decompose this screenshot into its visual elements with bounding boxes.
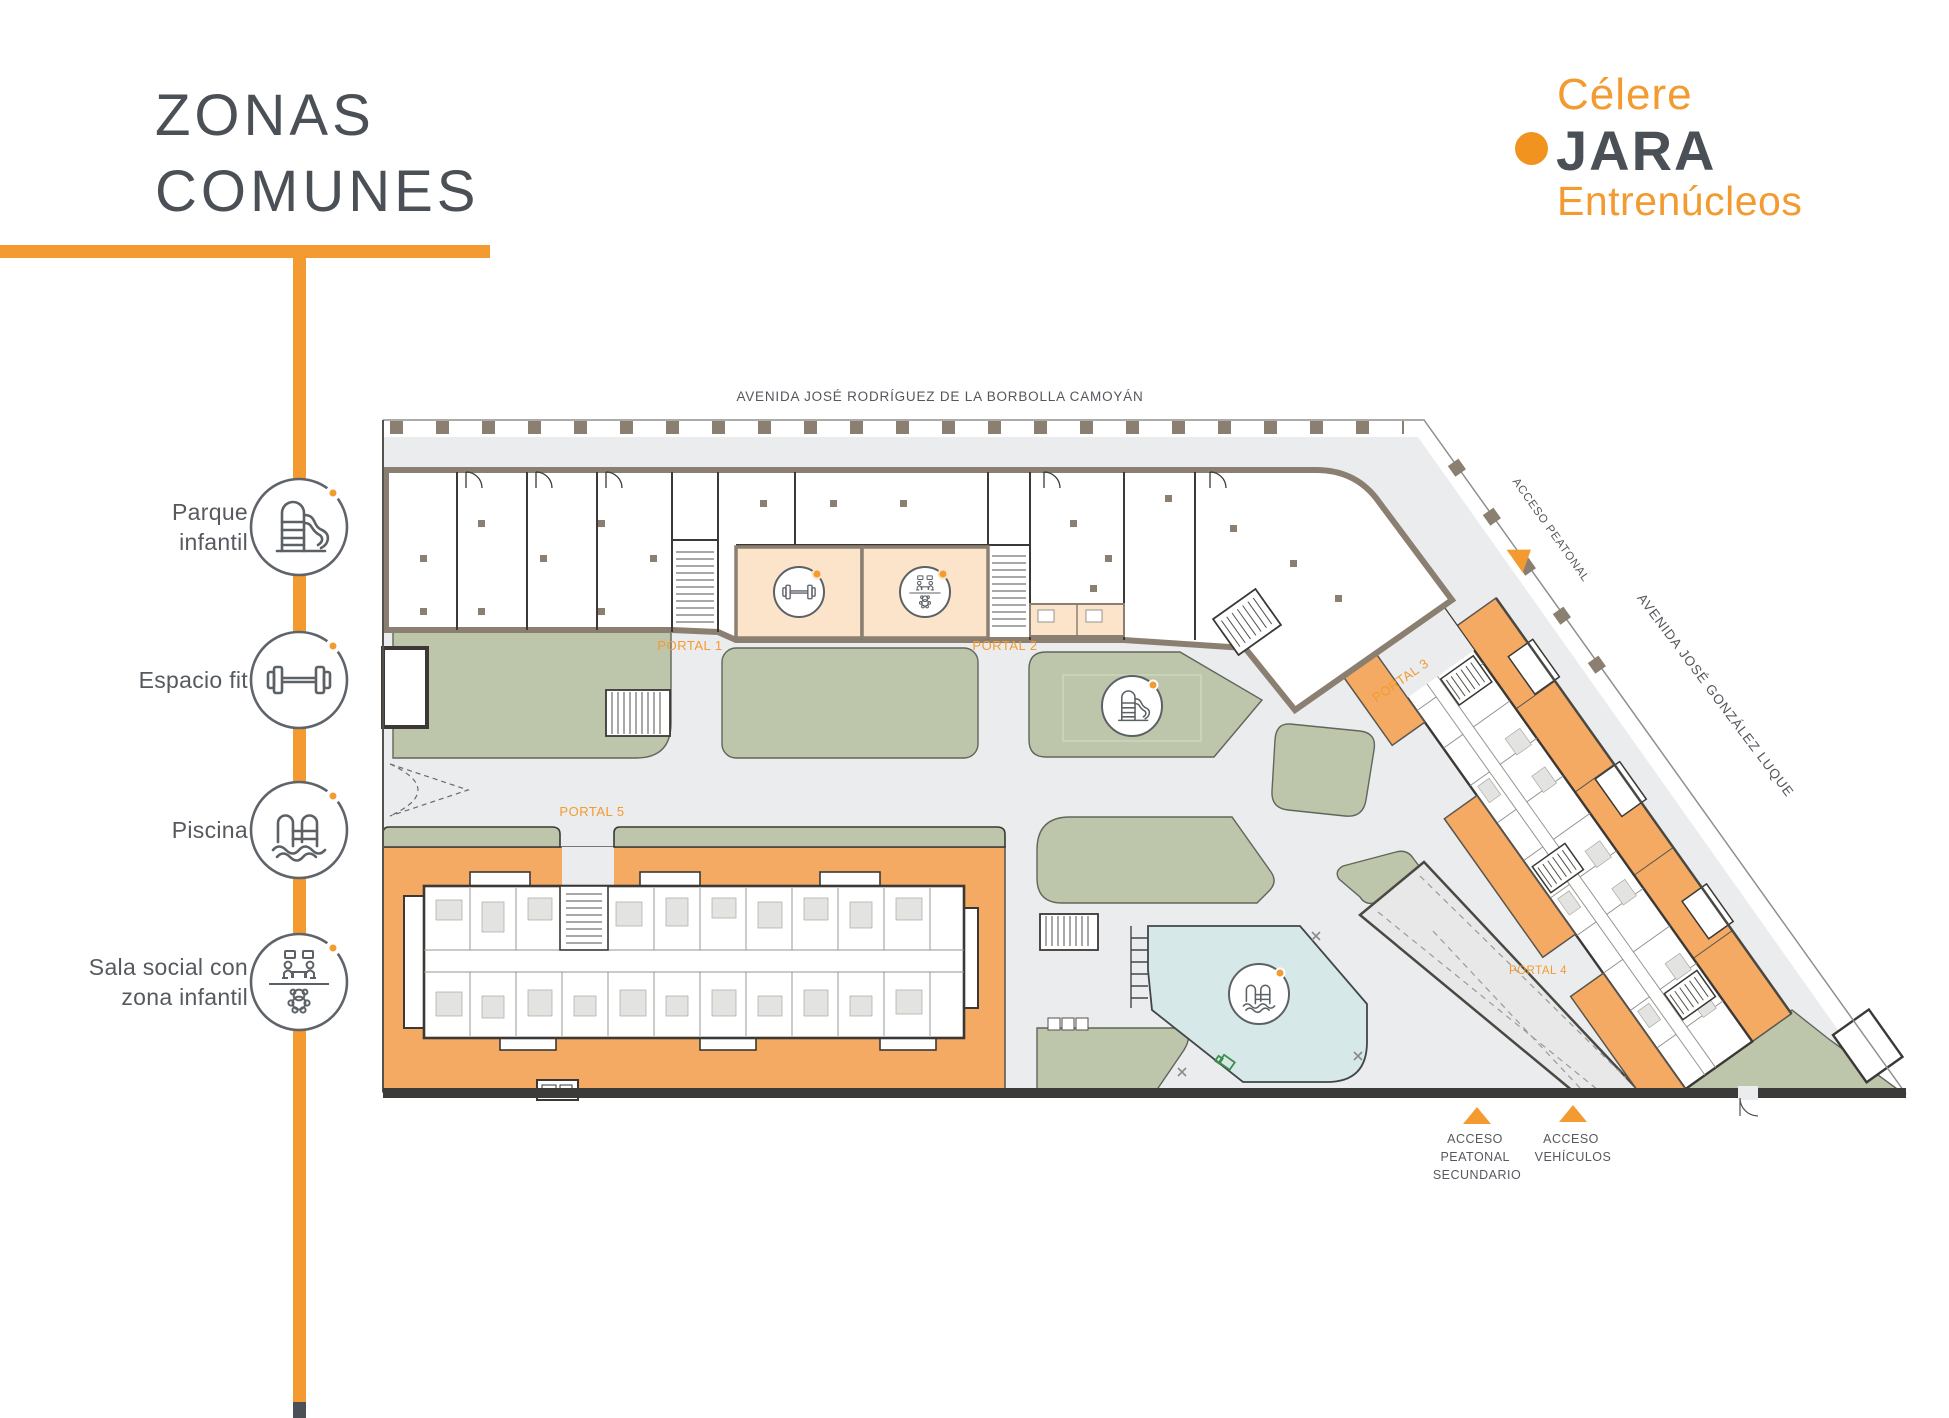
portal-5-label: PORTAL 5: [559, 804, 624, 819]
access-secondary-label: ACCESO PEATONAL SECUNDARIO: [1433, 1132, 1521, 1182]
access-secondary-line1: ACCESO: [1447, 1132, 1503, 1146]
pool-ladder-icon: [244, 775, 354, 885]
dumbbell-icon: [244, 625, 354, 735]
page-title-line1: ZONAS: [155, 78, 479, 154]
legend-parque-line1: Parque: [0, 497, 248, 527]
plan-playground-icon: [1102, 676, 1162, 736]
gate-gap: [1738, 1086, 1758, 1100]
brand-name: Célere: [1557, 70, 1693, 120]
portal-1-label: PORTAL 1: [657, 638, 722, 653]
site-bottom-wall: [383, 1088, 1906, 1098]
social-room-icon: [244, 927, 354, 1037]
page: AVENIDA JOSÉ RODRÍGUEZ DE LA BORBOLLA CA…: [0, 0, 1949, 1418]
legend-sala-line2: zona infantil: [0, 982, 248, 1012]
accent-bar-horizontal: [0, 245, 490, 258]
brand-location: Entrenúcleos: [1557, 178, 1802, 225]
legend-sala-line1: Sala social con: [0, 952, 248, 982]
access-vehicles-line2: VEHÍCULOS: [1535, 1149, 1612, 1164]
legend-parque-line2: infantil: [0, 527, 248, 557]
left-residential-block: [383, 827, 1005, 1100]
access-vehicles-label: ACCESO VEHÍCULOS: [1535, 1132, 1612, 1164]
annex-room: [383, 648, 427, 727]
access-secondary-line2: PEATONAL: [1440, 1150, 1509, 1164]
stair-core: [560, 886, 608, 950]
street-right-label: AVENIDA JOSÉ GONZÁLEZ LUQUE: [1634, 591, 1797, 800]
plan-gym-icon: [774, 567, 824, 617]
access-vehicles-arrow-icon: [1559, 1105, 1587, 1122]
page-title-line2: COMUNES: [155, 154, 479, 230]
access-vehicles-line1: ACCESO: [1543, 1132, 1599, 1146]
legend-label-parque-infantil: Parque infantil: [0, 497, 248, 557]
legend-label-sala-social: Sala social con zona infantil: [0, 952, 248, 1012]
access-secondary-arrow-icon: [1463, 1107, 1491, 1124]
street-ticks: [390, 421, 1404, 435]
accent-bar-cap: [293, 1402, 306, 1418]
brand-project: JARA: [1556, 118, 1716, 183]
brand-dot-icon: [1515, 132, 1548, 165]
plan-pool-icon: [1229, 964, 1289, 1024]
access-secondary-line3: SECUNDARIO: [1433, 1168, 1521, 1182]
legend-piscina-line1: Piscina: [0, 815, 248, 845]
street-top-label: AVENIDA JOSÉ RODRÍGUEZ DE LA BORBOLLA CA…: [736, 389, 1143, 404]
slide-icon: [244, 472, 354, 582]
legend-fit-line1: Espacio fit: [0, 665, 248, 695]
plan-social-icon: [900, 567, 950, 617]
courtyard-stair: [606, 690, 670, 736]
legend-label-espacio-fit: Espacio fit: [0, 665, 248, 695]
portal-4-label: PORTAL 4: [1509, 965, 1567, 977]
page-title: ZONAS COMUNES: [155, 78, 479, 230]
portal-2-label: PORTAL 2: [972, 638, 1037, 653]
legend-label-piscina: Piscina: [0, 815, 248, 845]
